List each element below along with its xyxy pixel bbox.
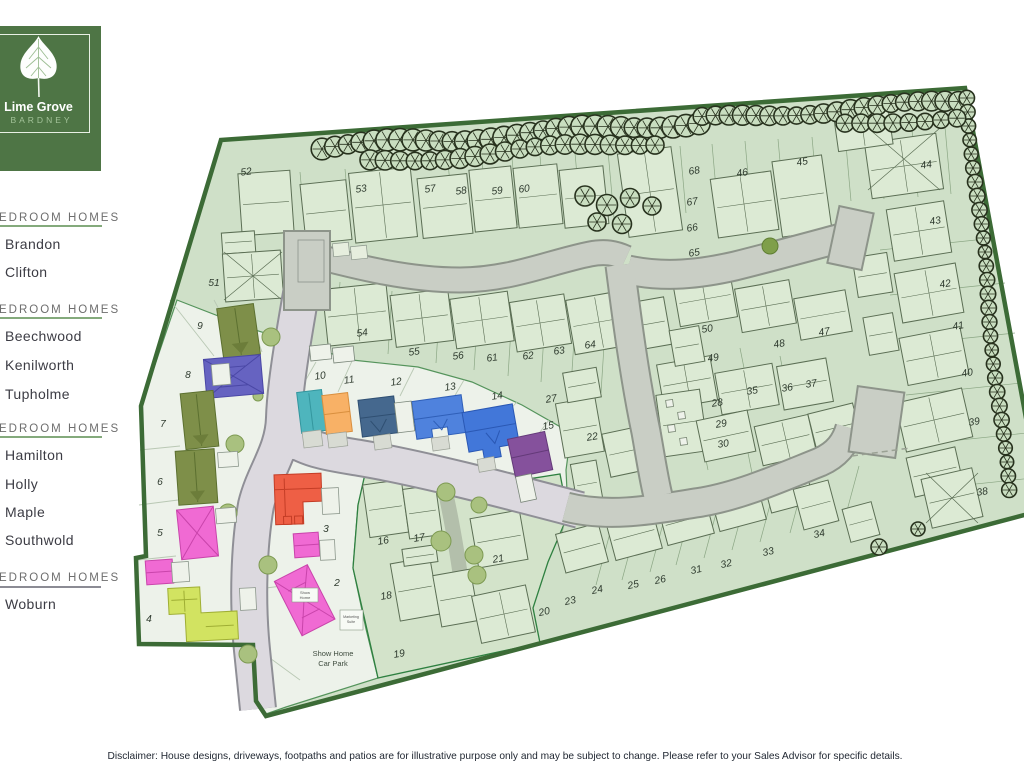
svg-text:15: 15 — [542, 420, 555, 433]
svg-text:4: 4 — [146, 614, 152, 625]
svg-text:42: 42 — [939, 278, 952, 291]
svg-text:2: 2 — [333, 578, 340, 589]
svg-text:7: 7 — [160, 419, 166, 430]
svg-text:49: 49 — [707, 352, 720, 365]
svg-text:48: 48 — [773, 338, 786, 351]
svg-text:65: 65 — [688, 247, 701, 260]
svg-text:58: 58 — [455, 185, 468, 198]
svg-text:11: 11 — [343, 374, 355, 386]
svg-text:61: 61 — [486, 352, 499, 364]
svg-text:54: 54 — [356, 327, 369, 340]
svg-text:9: 9 — [197, 321, 203, 332]
svg-text:5: 5 — [157, 528, 163, 539]
svg-text:Car Park: Car Park — [318, 659, 348, 668]
svg-text:50: 50 — [701, 323, 714, 336]
svg-text:52: 52 — [240, 166, 253, 179]
svg-text:62: 62 — [522, 350, 535, 363]
svg-text:68: 68 — [688, 165, 701, 178]
svg-text:40: 40 — [961, 367, 974, 380]
svg-text:56: 56 — [452, 350, 465, 363]
svg-text:64: 64 — [584, 339, 597, 352]
svg-text:37: 37 — [805, 378, 818, 391]
svg-text:18: 18 — [380, 590, 393, 603]
svg-text:59: 59 — [491, 185, 504, 198]
svg-text:6: 6 — [157, 477, 163, 488]
svg-text:28: 28 — [710, 397, 724, 410]
svg-text:30: 30 — [717, 438, 730, 451]
svg-text:Show Home: Show Home — [313, 649, 354, 658]
svg-text:53: 53 — [355, 183, 368, 196]
svg-text:Suite: Suite — [347, 620, 355, 624]
svg-text:44: 44 — [920, 159, 933, 172]
svg-text:3: 3 — [323, 524, 329, 535]
svg-text:57: 57 — [424, 183, 437, 196]
svg-text:67: 67 — [686, 196, 699, 209]
svg-text:10: 10 — [314, 370, 327, 383]
svg-text:63: 63 — [553, 345, 566, 358]
svg-text:21: 21 — [491, 553, 505, 566]
svg-text:14: 14 — [491, 390, 504, 403]
svg-text:Home: Home — [300, 595, 311, 600]
svg-text:Marketing: Marketing — [343, 615, 359, 619]
svg-text:35: 35 — [746, 385, 759, 398]
svg-text:39: 39 — [968, 416, 981, 429]
svg-text:60: 60 — [518, 183, 531, 196]
svg-text:38: 38 — [976, 486, 989, 499]
svg-text:43: 43 — [929, 215, 942, 228]
svg-text:45: 45 — [796, 156, 809, 169]
svg-text:19: 19 — [393, 648, 406, 661]
svg-text:55: 55 — [408, 346, 421, 359]
svg-text:12: 12 — [390, 376, 403, 389]
svg-text:29: 29 — [714, 418, 728, 431]
svg-text:31: 31 — [690, 564, 703, 577]
svg-text:8: 8 — [185, 370, 191, 381]
svg-text:16: 16 — [377, 535, 390, 548]
svg-text:46: 46 — [736, 167, 749, 180]
svg-text:36: 36 — [781, 382, 794, 395]
svg-text:47: 47 — [818, 326, 831, 339]
svg-text:41: 41 — [952, 320, 965, 333]
svg-text:13: 13 — [444, 381, 457, 394]
svg-text:51: 51 — [208, 278, 219, 289]
svg-text:66: 66 — [686, 222, 699, 235]
svg-text:27: 27 — [544, 393, 558, 406]
svg-text:22: 22 — [585, 431, 599, 444]
svg-text:17: 17 — [413, 532, 426, 545]
